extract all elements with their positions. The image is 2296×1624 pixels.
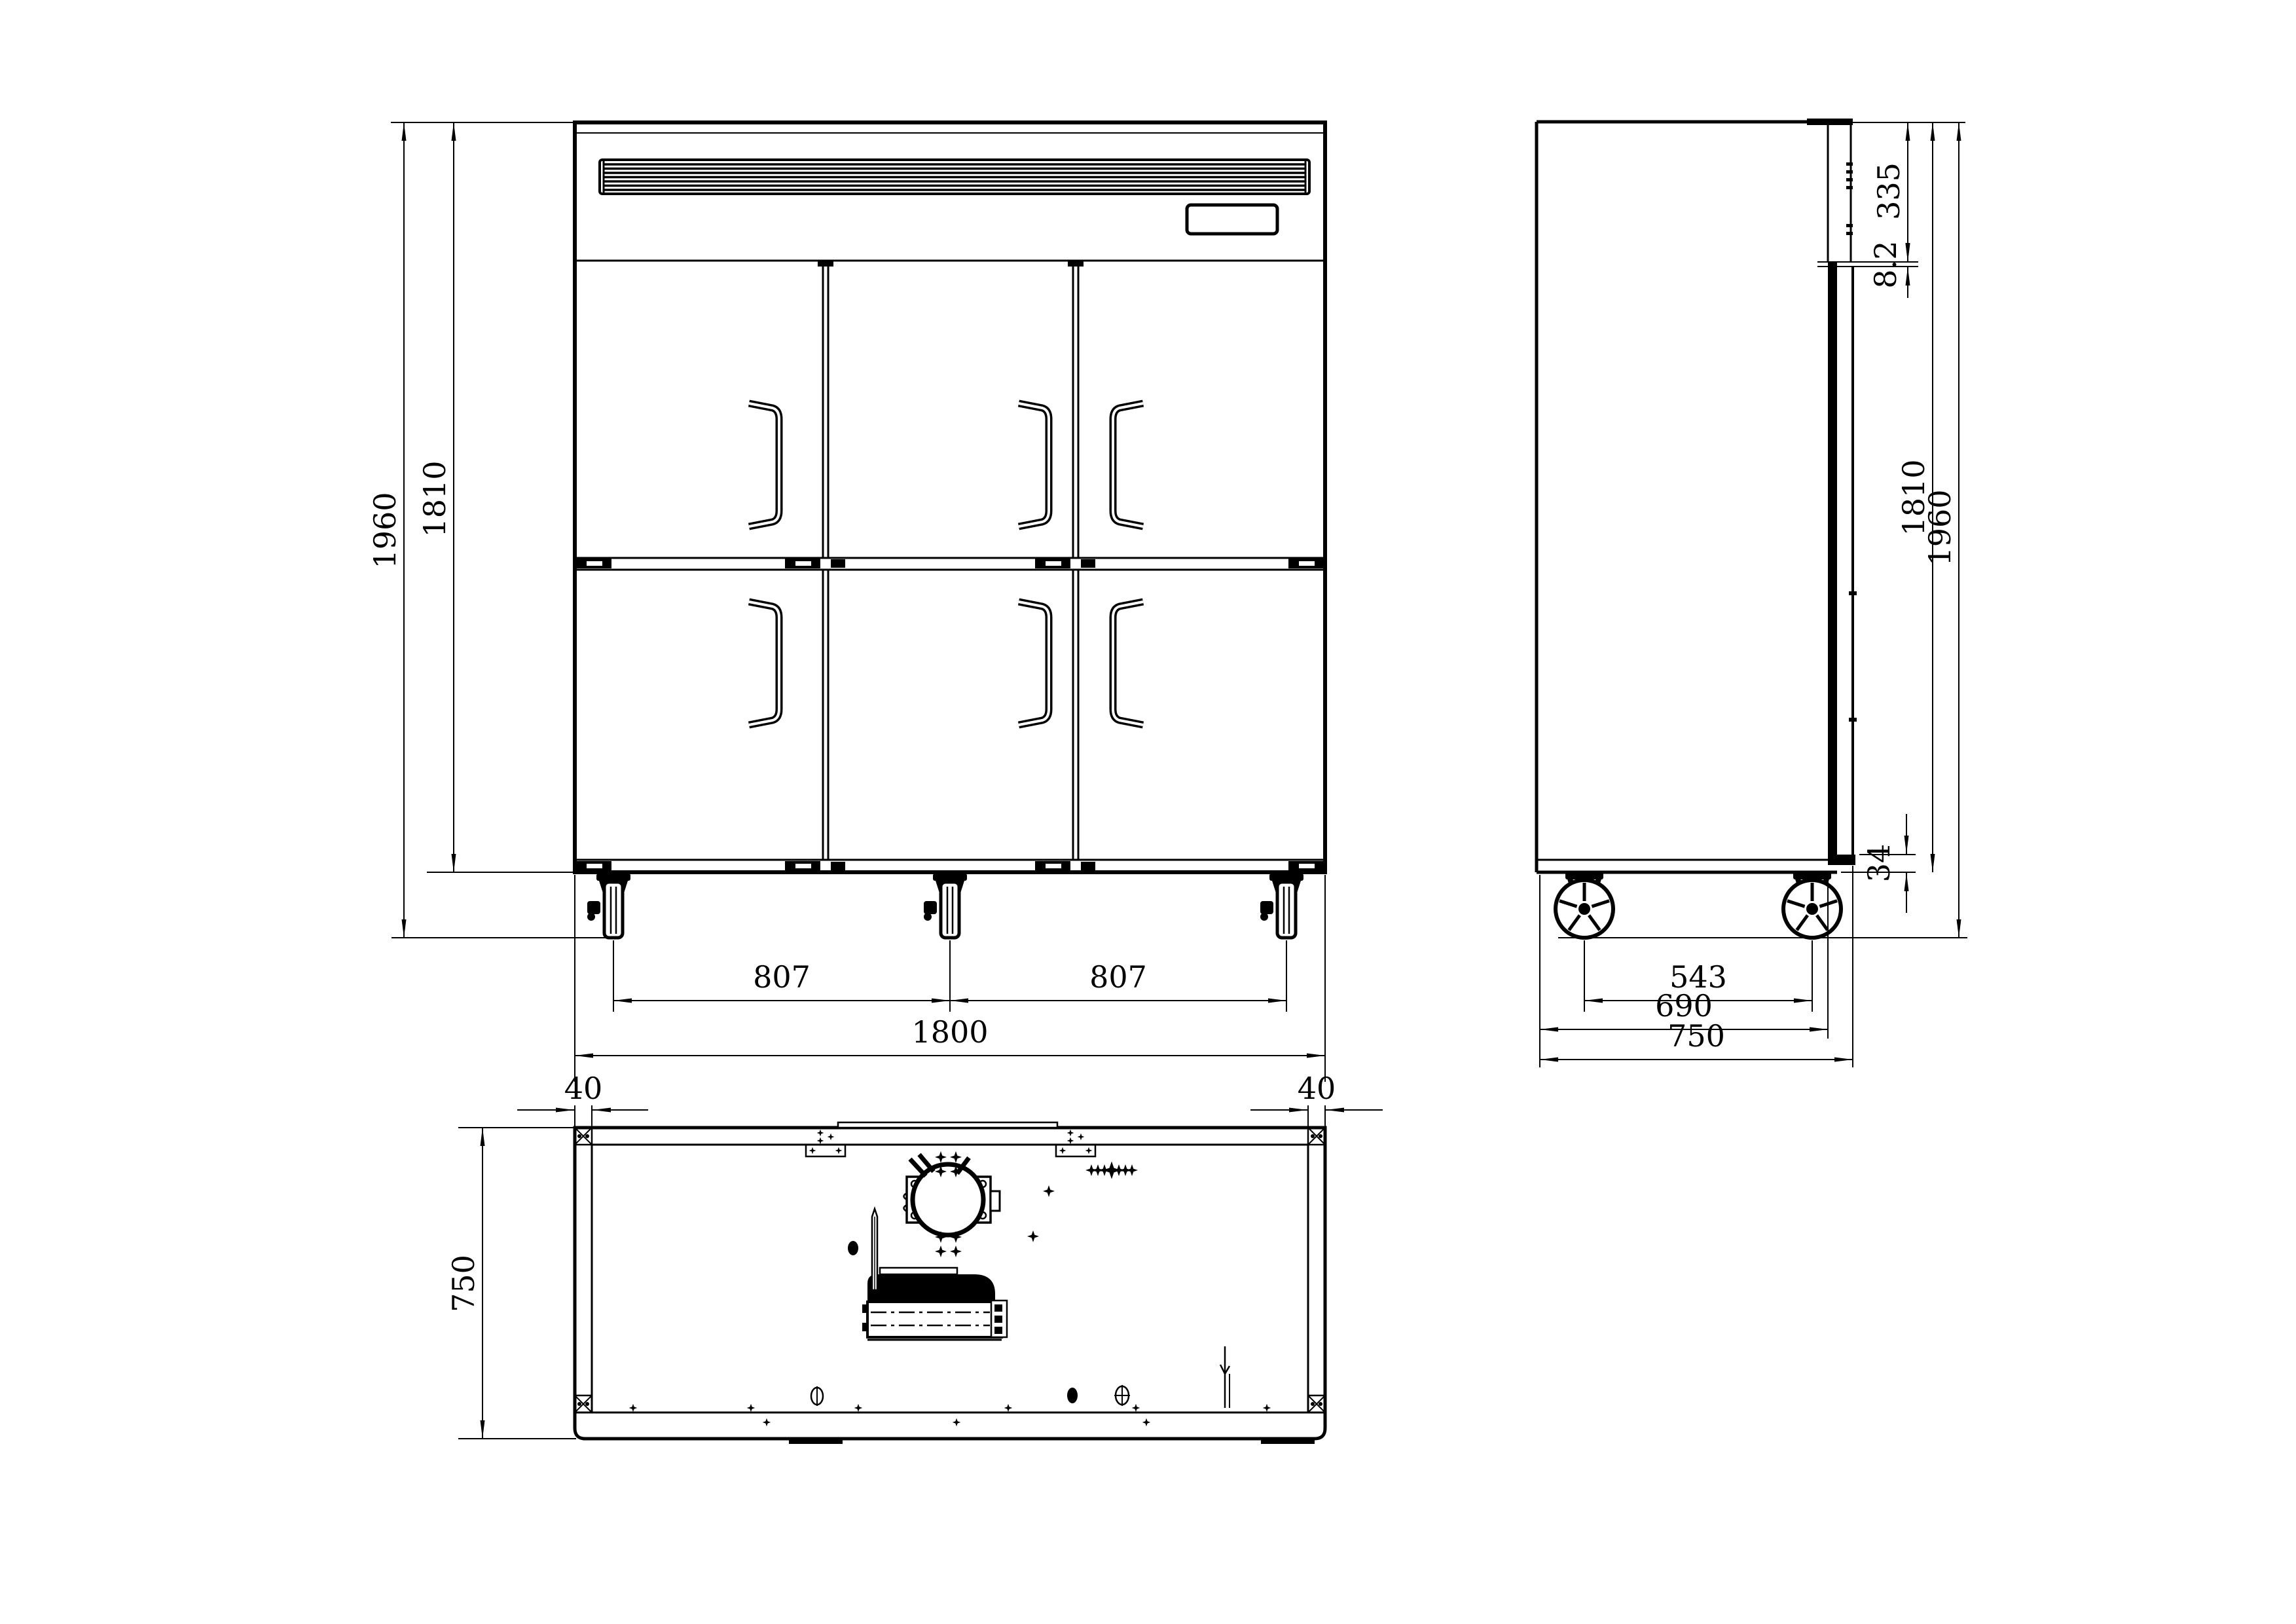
dim-front-caster-pitch-left: 807: [753, 959, 811, 995]
drawing-sheet: 1960 1810 807 807 1800: [0, 0, 2296, 1624]
dim-side-recess: 8.2: [1868, 240, 1903, 288]
side-view: 335 8.2 1810 1960 34 543 690 750: [1537, 119, 1967, 1067]
dim-bottom-offset-left: 40: [564, 1071, 603, 1106]
side-dim-right: 335 8.2 1810 1960 34: [1841, 122, 1965, 938]
bottom-view: 40 40 750: [446, 1071, 1383, 1444]
front-vent-grille: [600, 160, 1309, 194]
side-door-back-wall: [1828, 267, 1837, 860]
dim-bottom-offset-right: 40: [1298, 1071, 1336, 1106]
bottom-compressor: [862, 1268, 1007, 1340]
front-view: 1960 1810 807 807 1800: [367, 122, 1325, 1082]
dim-front-overall-height: 1960: [367, 492, 403, 568]
bottom-dim-depth: 750: [446, 1128, 576, 1439]
dim-side-overall-depth: 750: [1667, 1018, 1725, 1054]
dim-front-body-height: 1810: [417, 460, 452, 537]
dim-side-top-section: 335: [1871, 162, 1906, 220]
front-control-panel: [1187, 205, 1277, 234]
side-door-bottom: [1828, 855, 1855, 865]
side-casters: [1556, 872, 1841, 938]
dim-bottom-depth: 750: [446, 1255, 481, 1312]
side-front-face: [1817, 122, 1858, 865]
dim-side-bottom-gap: 34: [1861, 844, 1897, 883]
technical-drawing: 1960 1810 807 807 1800: [0, 0, 2296, 1624]
front-casters: [587, 874, 1303, 938]
dim-side-overall-height: 1960: [1922, 489, 1958, 566]
dim-front-overall-width: 1800: [911, 1014, 988, 1050]
dim-front-caster-pitch-right: 807: [1089, 959, 1147, 995]
bottom-dim-offsets: 40 40: [517, 1071, 1383, 1128]
